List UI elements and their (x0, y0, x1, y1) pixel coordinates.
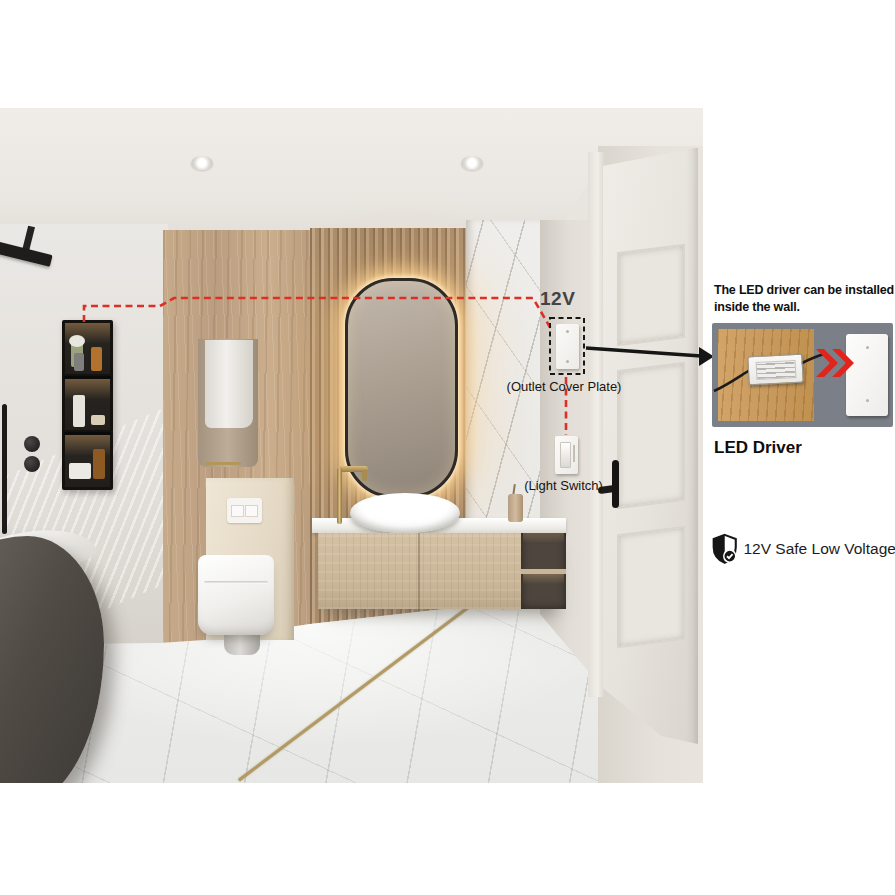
towel-rail-small (205, 462, 241, 465)
shield-check-icon (710, 533, 739, 565)
towel-stack (69, 463, 91, 479)
screw (566, 330, 569, 333)
door (601, 148, 698, 744)
niche-shelf (65, 379, 110, 430)
bathroom-scene-photo (0, 108, 703, 783)
door-panel (617, 244, 685, 346)
faucet (337, 468, 342, 524)
led-driver-caption: LED Driver (714, 438, 802, 458)
safety-text: 12V Safe Low Voltage (743, 540, 895, 558)
towel-white (205, 340, 253, 428)
hand-shower-bar (2, 404, 7, 534)
flush-button (231, 505, 244, 517)
valve-knob (24, 456, 40, 472)
pump-bottle (73, 395, 85, 427)
driver-note-line2: inside the wall. (714, 299, 895, 316)
shower-valve (22, 436, 42, 476)
niche-shelf (65, 323, 110, 374)
driver-install-note: The LED driver can be installed inside t… (714, 282, 895, 316)
cubby-glow (523, 574, 564, 584)
towel-bar (184, 337, 284, 340)
vanity-cabinet (318, 533, 566, 609)
product-image: 12V (Outlet Cover Plate) (Light Switch) … (0, 0, 895, 895)
door-frame (588, 152, 604, 697)
outlet-cover-label: (Outlet Cover Plate) (493, 379, 635, 394)
glass-vase (74, 353, 84, 371)
open-shelf-cubbies (521, 533, 566, 609)
outlet-cover-plate (556, 324, 579, 369)
wire-left (714, 370, 750, 391)
safety-badge: 12V Safe Low Voltage (710, 532, 895, 566)
wire-right (800, 354, 824, 364)
light-switch (555, 436, 578, 474)
voltage-label: 12V (540, 288, 586, 310)
flush-button (245, 505, 258, 517)
switch-rocker (560, 442, 571, 468)
valve-knob (24, 436, 40, 452)
recessed-light (191, 156, 213, 170)
door-panel (617, 526, 685, 648)
amber-bottle (91, 347, 102, 371)
cubby-glow (523, 533, 564, 543)
counter-cup (508, 494, 523, 522)
flush-plate (227, 498, 262, 523)
screw (566, 360, 569, 363)
double-chevron-right-icon (816, 349, 854, 377)
led-driver-box (747, 354, 803, 386)
door-handle (612, 460, 619, 508)
soap-bar (91, 415, 105, 425)
light-switch-label: (Light Switch) (516, 478, 611, 493)
recessed-light (461, 156, 483, 170)
switch-dimmer-slider (573, 445, 575, 462)
toilet-seat-line (204, 581, 268, 584)
led-backlit-mirror (345, 278, 458, 498)
flowers (69, 335, 85, 347)
amber-bottle (93, 449, 105, 479)
vessel-sink (350, 493, 460, 533)
wall-niche-shelves (62, 320, 113, 490)
driver-note-line1: The LED driver can be installed (714, 282, 895, 299)
niche-shelf (65, 435, 110, 487)
driver-spec-label (756, 360, 797, 380)
faucet-tip (362, 470, 367, 481)
cabinet-door-seam (418, 533, 420, 609)
wall-hung-toilet (198, 555, 274, 635)
led-driver-inset-image (712, 323, 893, 427)
